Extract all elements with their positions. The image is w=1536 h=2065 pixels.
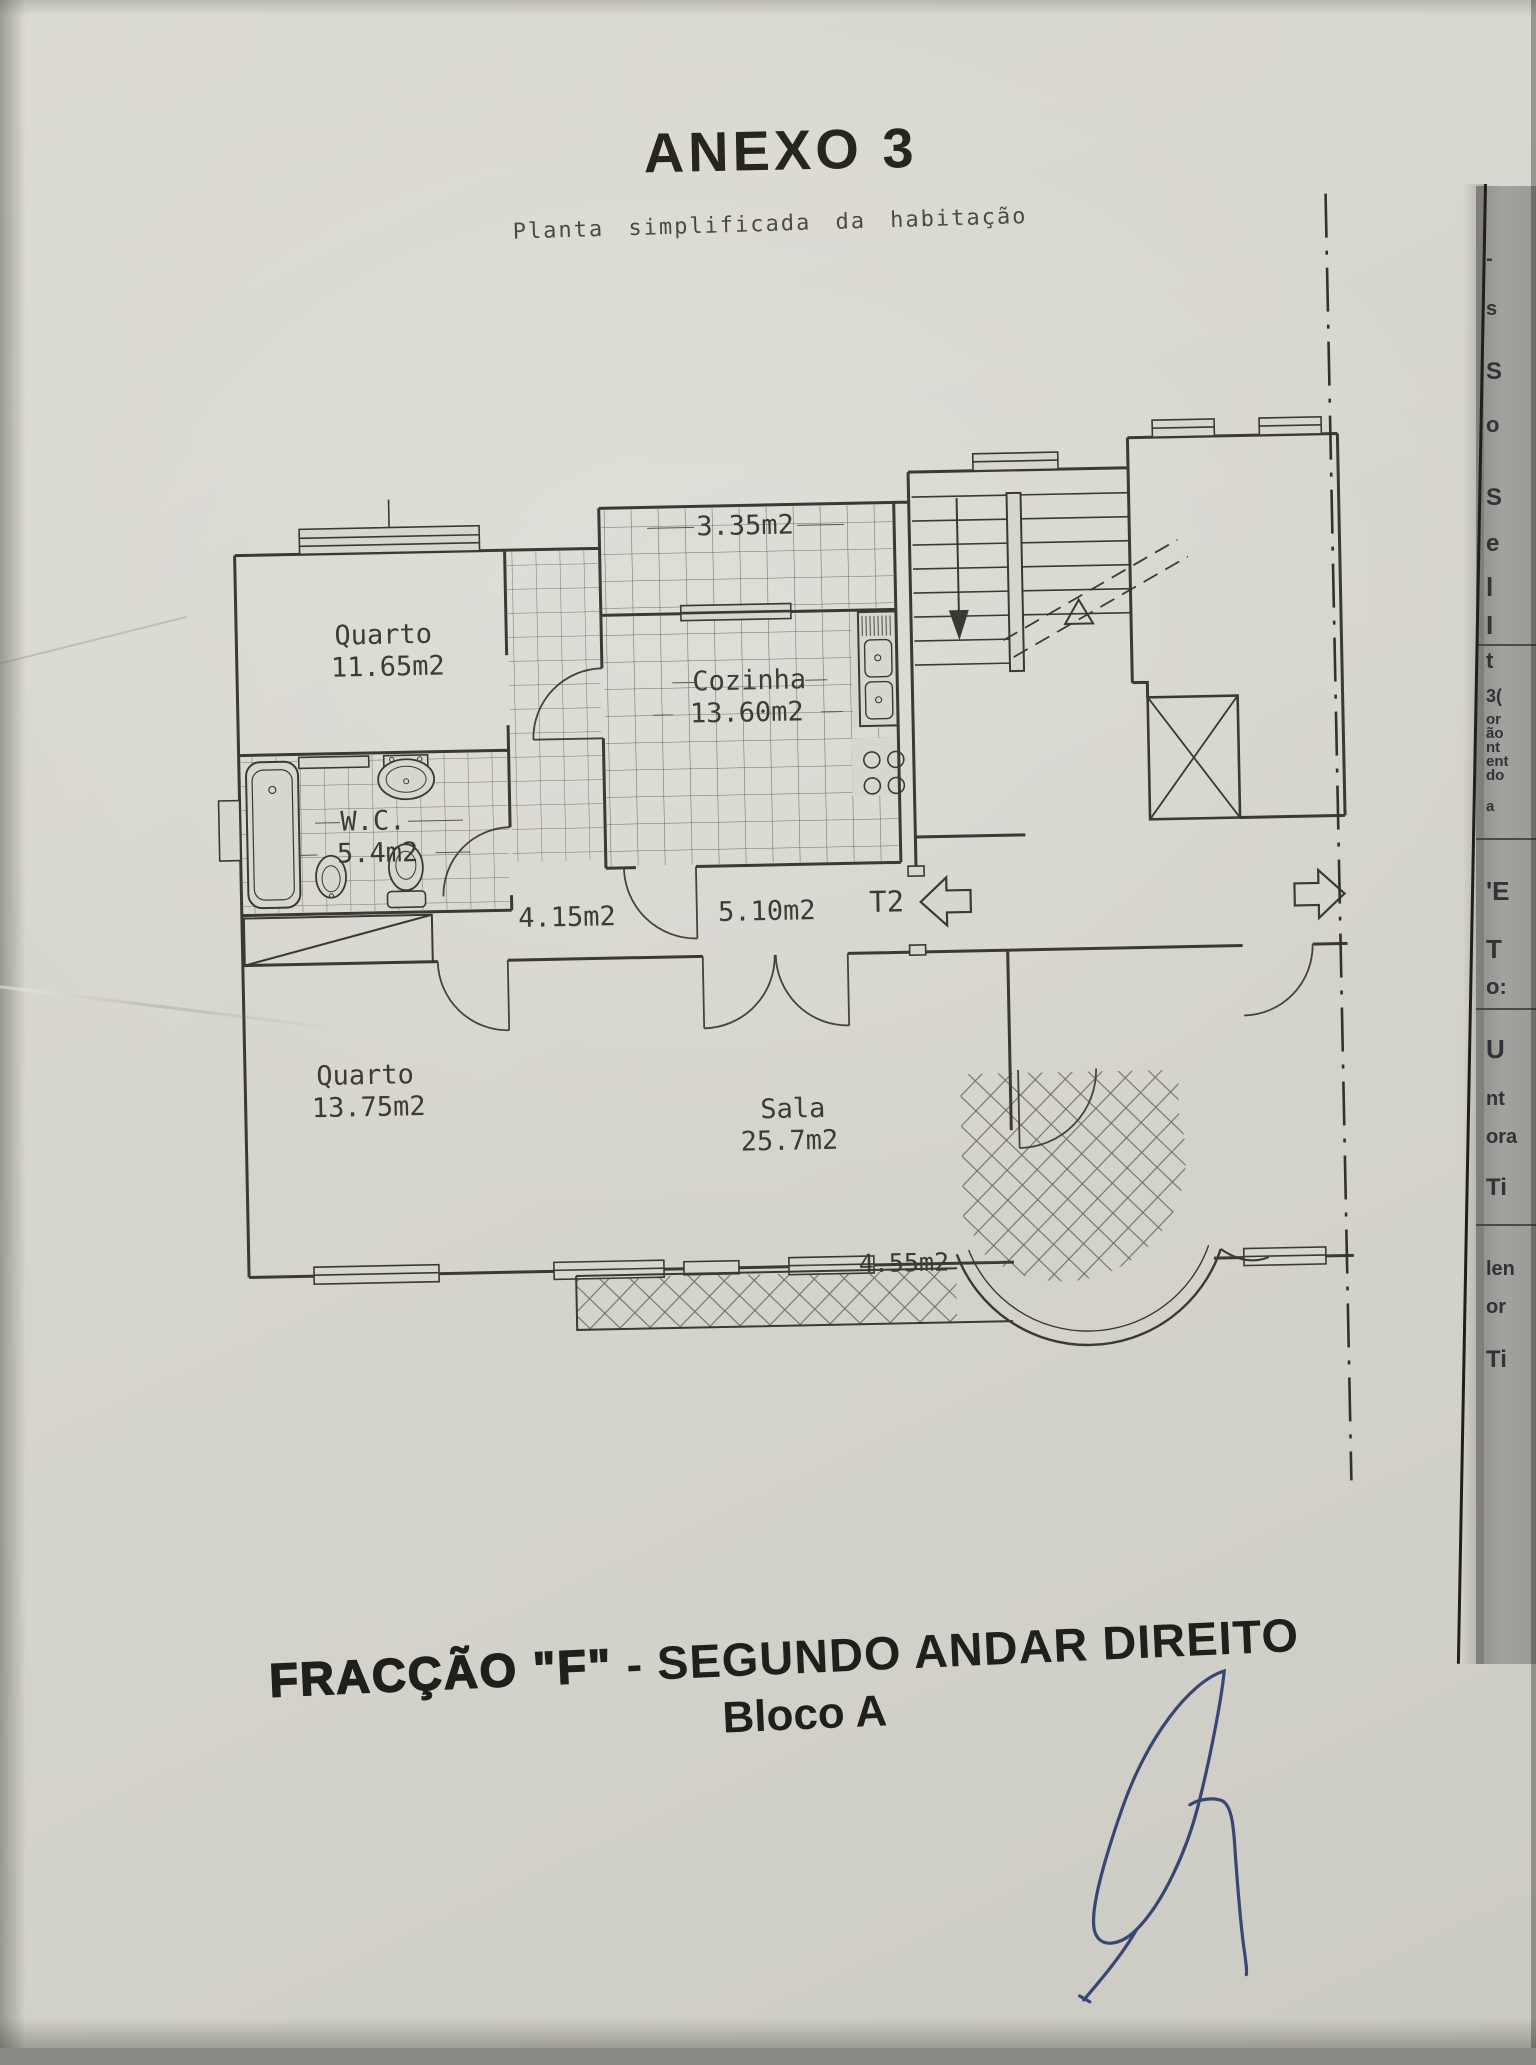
stair-newel-wall — [1007, 493, 1025, 671]
wc-window — [299, 756, 369, 768]
bedroom1-area-label: 11.65m2 — [331, 650, 445, 683]
entry-arrows — [920, 869, 1345, 926]
bottom-balcony-hatch — [576, 1270, 957, 1330]
stair-treads-left — [912, 495, 1010, 665]
neighbor-door-arc — [1243, 944, 1314, 1015]
annex-title: ANEXO 3 — [12, 102, 1536, 198]
scanned-document-photo: { "document": { "title": "ANEXO 3", "sub… — [0, 0, 1536, 2048]
wardrobe — [244, 915, 433, 966]
fraction-caption: FRACÇÃO "F" - SEGUNDO ANDAR DIREITO Bloc… — [16, 1596, 1536, 1775]
entry-jamb-bottom — [910, 945, 926, 955]
bedroom1-window — [299, 526, 479, 555]
hall-area-label: 4.15m2 — [518, 901, 616, 934]
bedroom2-door-arc — [438, 960, 509, 1031]
living-name-label: Sala — [760, 1093, 826, 1125]
kitchen-name-label: Cozinha — [692, 664, 806, 697]
photo-shade-top — [0, 0, 1536, 16]
party-wall-dashdot-line — [1326, 194, 1352, 1481]
bottom-balcony-area-label: 4.55m2 — [858, 1247, 949, 1278]
signature-tail — [1078, 1930, 1137, 2002]
round-balcony-hatch — [960, 1070, 1188, 1284]
toilet-tank — [387, 891, 425, 908]
living-door-left-arc — [703, 955, 776, 1028]
duct-box — [219, 801, 241, 861]
entry-arrow-right — [1294, 869, 1345, 918]
stairwell — [912, 490, 1191, 673]
kitchen-area-label: 13.60m2 — [690, 696, 804, 729]
entry-strip-tiles — [507, 550, 604, 862]
balcony-threshold-b — [681, 611, 791, 620]
top-balcony-area-label: 3.35m2 — [696, 509, 794, 542]
elevator-x — [1148, 696, 1240, 820]
unit-type-label: T2 — [869, 884, 905, 919]
living-area-label: 25.7m2 — [740, 1125, 838, 1158]
fraction-id: FRACÇÃO "F" — [268, 1639, 613, 1707]
document-content: ANEXO 3 Planta simplificada da habitação — [0, 0, 1536, 2063]
floor-plan: Quarto 11.65m2 3.35m2 Cozinha 13.60m2 W.… — [193, 188, 1389, 1511]
bedroom1-name-label: Quarto — [334, 619, 432, 652]
entry-hall-area-label: 5.10m2 — [718, 895, 816, 928]
elevator-shaft — [1148, 696, 1240, 820]
signature-loop — [1089, 1671, 1230, 1944]
pen-signature — [1037, 1640, 1305, 2045]
window-tick — [389, 500, 390, 528]
stair-treads-right — [1021, 493, 1131, 615]
wc-area-label: 5.4m2 — [337, 837, 419, 870]
photo-shade-bottom — [0, 2018, 1536, 2048]
stair-direction-line — [957, 498, 959, 616]
living-door-right-arc — [776, 953, 849, 1026]
bedroom2-area-label: 13.75m2 — [312, 1091, 426, 1124]
bedroom2-name-label: Quarto — [316, 1059, 414, 1092]
entry-arrow-left — [920, 877, 971, 926]
signature-leg — [1190, 1798, 1247, 1975]
photo-shade-left — [0, 0, 26, 2048]
section-cut-dashes — [1002, 540, 1190, 658]
wc-name-label: W.C. — [340, 805, 406, 837]
kitchen-door-arc — [624, 866, 697, 939]
entry-jamb-top — [908, 866, 924, 876]
stair-down-arrow — [949, 610, 970, 640]
